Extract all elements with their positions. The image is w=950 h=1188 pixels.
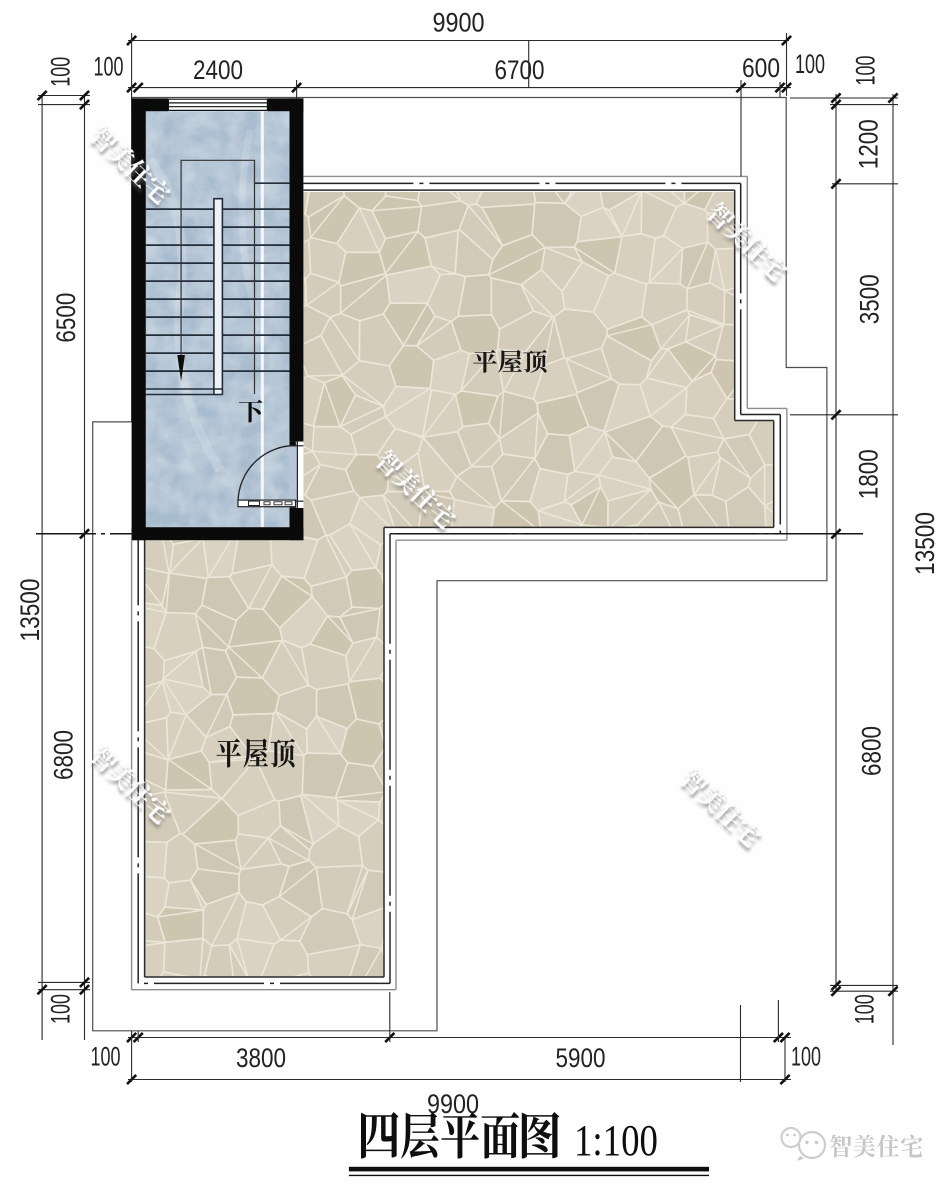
svg-text:5900: 5900 — [556, 1043, 606, 1073]
svg-text:6500: 6500 — [51, 293, 81, 343]
svg-text:9900: 9900 — [433, 8, 485, 38]
svg-text:100: 100 — [795, 49, 825, 79]
svg-text:3500: 3500 — [855, 274, 885, 324]
svg-text:100: 100 — [46, 57, 76, 87]
svg-text:1200: 1200 — [854, 119, 884, 169]
svg-text:13500: 13500 — [910, 512, 940, 575]
svg-text:100: 100 — [91, 1042, 121, 1072]
svg-text:3800: 3800 — [236, 1043, 286, 1073]
svg-text:1800: 1800 — [854, 449, 884, 499]
svg-text:13500: 13500 — [15, 579, 45, 642]
svg-text:2400: 2400 — [193, 55, 243, 85]
svg-text:100: 100 — [850, 994, 880, 1024]
svg-text:6800: 6800 — [49, 730, 79, 780]
svg-text:1:100: 1:100 — [574, 1116, 658, 1165]
svg-text:100: 100 — [791, 1042, 821, 1072]
svg-text:6700: 6700 — [495, 55, 545, 85]
svg-text:100: 100 — [94, 52, 124, 82]
svg-text:600: 600 — [742, 53, 780, 83]
svg-text:100: 100 — [46, 994, 76, 1024]
svg-text:100: 100 — [851, 56, 881, 86]
svg-text:6800: 6800 — [857, 726, 887, 776]
